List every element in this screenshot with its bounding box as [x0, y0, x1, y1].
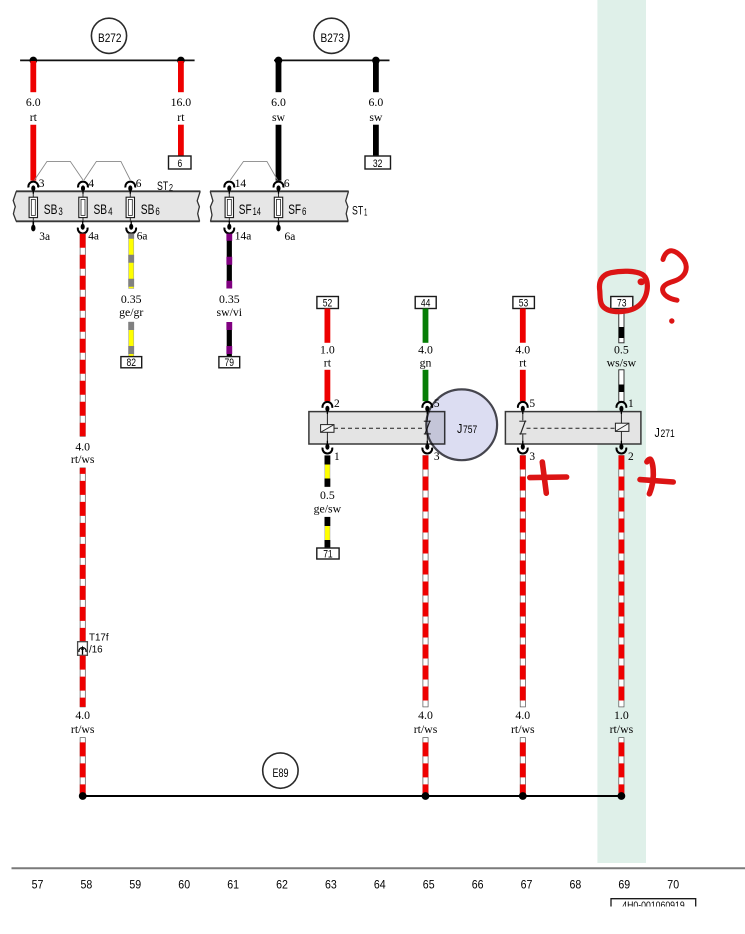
svg-text:1.0: 1.0: [320, 343, 335, 357]
svg-text:4.0: 4.0: [418, 343, 433, 357]
svg-text:J: J: [457, 422, 462, 436]
svg-text:4.0: 4.0: [515, 343, 530, 357]
svg-text:71: 71: [323, 548, 333, 560]
svg-text:3: 3: [58, 206, 62, 218]
svg-text:6: 6: [284, 178, 290, 190]
svg-text:4.0: 4.0: [515, 708, 530, 722]
svg-text:68: 68: [570, 878, 582, 892]
svg-text:1: 1: [334, 451, 340, 463]
svg-text:4.0: 4.0: [75, 708, 90, 722]
svg-text:1: 1: [628, 398, 634, 410]
svg-text:6.0: 6.0: [26, 95, 41, 109]
svg-text:14: 14: [235, 178, 247, 190]
svg-text:63: 63: [325, 878, 337, 892]
svg-text:SB: SB: [94, 201, 108, 217]
svg-text:2: 2: [334, 398, 340, 410]
svg-text:ST: ST: [157, 179, 168, 193]
svg-text:rt/ws: rt/ws: [414, 722, 438, 736]
svg-text:6.0: 6.0: [271, 95, 286, 109]
svg-text:SF: SF: [239, 201, 252, 217]
svg-text:66: 66: [472, 878, 484, 892]
svg-text:4.0: 4.0: [418, 708, 433, 722]
svg-text:58: 58: [81, 878, 93, 892]
svg-text:4a: 4a: [88, 230, 99, 242]
svg-text:6a: 6a: [285, 231, 296, 243]
svg-text:2: 2: [628, 451, 634, 463]
svg-text:rt/ws: rt/ws: [71, 722, 95, 736]
svg-text:0.35: 0.35: [219, 292, 240, 306]
svg-text:64: 64: [374, 878, 386, 892]
svg-text:rt: rt: [30, 110, 38, 124]
svg-text:rt/ws: rt/ws: [610, 722, 634, 736]
svg-text:14a: 14a: [235, 230, 251, 242]
svg-text:61: 61: [227, 878, 239, 892]
svg-text:4: 4: [108, 206, 112, 218]
svg-text:6a: 6a: [137, 230, 148, 242]
svg-text:sw: sw: [369, 110, 383, 124]
svg-text:4: 4: [88, 178, 94, 190]
svg-text:B273: B273: [321, 31, 345, 45]
svg-text:SB: SB: [44, 201, 58, 217]
svg-text:ge/gr: ge/gr: [119, 305, 143, 319]
svg-text:1.0: 1.0: [614, 708, 629, 722]
svg-text:SF: SF: [288, 201, 301, 217]
svg-text:gn: gn: [420, 356, 432, 370]
svg-text:14: 14: [253, 206, 261, 218]
svg-text:57: 57: [32, 878, 44, 892]
svg-text:4H0-001060919: 4H0-001060919: [622, 901, 685, 912]
svg-text:59: 59: [129, 878, 141, 892]
svg-text:rt: rt: [177, 110, 185, 124]
svg-text:rt/ws: rt/ws: [511, 722, 535, 736]
svg-text:ST: ST: [352, 204, 363, 218]
svg-text:J: J: [655, 426, 660, 440]
svg-text:rt/ws: rt/ws: [71, 452, 95, 466]
svg-text:3: 3: [39, 178, 45, 190]
svg-text:5: 5: [529, 398, 535, 410]
svg-text:ge/sw: ge/sw: [314, 502, 342, 516]
svg-text:2: 2: [169, 183, 173, 194]
svg-text:E89: E89: [273, 766, 289, 780]
svg-text:62: 62: [276, 878, 288, 892]
svg-text:1: 1: [364, 208, 368, 219]
svg-text:6.0: 6.0: [369, 95, 384, 109]
svg-text:60: 60: [178, 878, 190, 892]
svg-text:6: 6: [136, 178, 142, 190]
svg-text:sw: sw: [272, 110, 286, 124]
svg-text:70: 70: [667, 878, 679, 892]
svg-text:69: 69: [618, 878, 630, 892]
svg-text:271: 271: [661, 428, 675, 440]
svg-text:757: 757: [463, 424, 477, 436]
svg-text:52: 52: [323, 298, 333, 310]
svg-text:6: 6: [178, 158, 183, 170]
svg-text:B272: B272: [98, 31, 122, 45]
svg-text:/16: /16: [89, 645, 103, 656]
svg-text:0.35: 0.35: [121, 292, 142, 306]
svg-text:16.0: 16.0: [171, 95, 192, 109]
svg-text:0.5: 0.5: [614, 343, 629, 357]
svg-text:3: 3: [529, 451, 535, 463]
svg-text:79: 79: [225, 357, 235, 369]
svg-text:SB: SB: [141, 201, 155, 217]
svg-text:67: 67: [521, 878, 533, 892]
svg-text:32: 32: [373, 158, 383, 170]
svg-text:65: 65: [423, 878, 435, 892]
svg-text:rt: rt: [324, 356, 332, 370]
svg-text:53: 53: [519, 298, 529, 310]
svg-text:6: 6: [302, 206, 306, 218]
svg-text:82: 82: [127, 357, 137, 369]
svg-text:T17f: T17f: [89, 632, 109, 643]
svg-text:73: 73: [617, 298, 627, 310]
svg-text:0.5: 0.5: [320, 488, 335, 502]
svg-text:ws/sw: ws/sw: [607, 356, 637, 370]
svg-text:sw/vi: sw/vi: [217, 305, 243, 319]
svg-text:rt: rt: [519, 356, 527, 370]
svg-text:3a: 3a: [39, 231, 50, 243]
svg-text:44: 44: [421, 298, 431, 310]
svg-text:6: 6: [155, 206, 159, 218]
